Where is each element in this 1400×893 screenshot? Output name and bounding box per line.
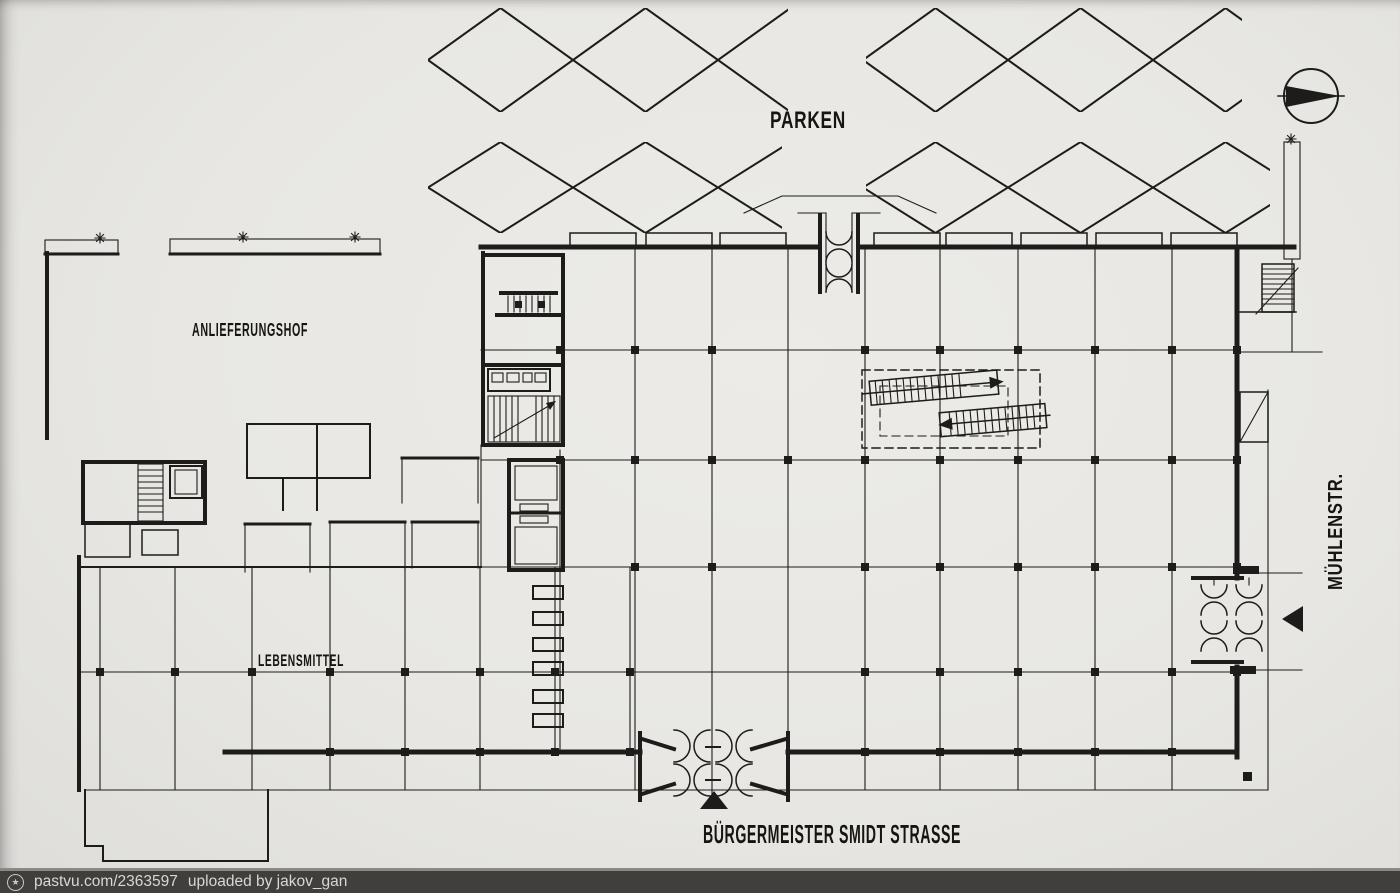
east-entrance-triangle-icon — [1282, 606, 1303, 632]
elevator-vestibule — [509, 460, 563, 570]
watermark-uploader: uploaded by jakov_gan — [188, 873, 347, 891]
escalator-core — [861, 370, 1051, 448]
pastvu-star-circle-icon: ★ — [7, 874, 24, 891]
checkout-row — [533, 586, 563, 727]
north-compass-icon — [1278, 69, 1344, 123]
label-muehlenstr: MÜHLENSTR. — [1324, 473, 1347, 590]
watermark-site: pastvu.com/2363597 — [34, 873, 178, 891]
watermark-bar: ★ pastvu.com/2363597 uploaded by jakov_g… — [0, 868, 1400, 893]
parking-area — [428, 8, 1270, 233]
label-lebensmittel: LEBENSMITTEL — [258, 651, 344, 670]
floor-plan-drawing: PARKEN ANLIEFERUNGSHOF LEBENSMITTEL MÜHL… — [0, 0, 1400, 868]
stairs-top-left-block — [483, 253, 563, 445]
side-rooms — [245, 424, 478, 572]
label-parken: PARKEN — [770, 107, 846, 134]
label-strasse: BÜRGERMEISTER SMIDT STRASSE — [703, 819, 961, 849]
entrance-markers — [700, 606, 1303, 809]
stair-elevator-block-left — [83, 462, 205, 557]
scanned-floor-plan: PARKEN ANLIEFERUNGSHOF LEBENSMITTEL MÜHL… — [0, 0, 1400, 893]
grid-columns — [96, 346, 1252, 781]
stairs-top-right — [1240, 264, 1298, 442]
label-anlieferungshof: ANLIEFERUNGSHOF — [192, 320, 308, 340]
